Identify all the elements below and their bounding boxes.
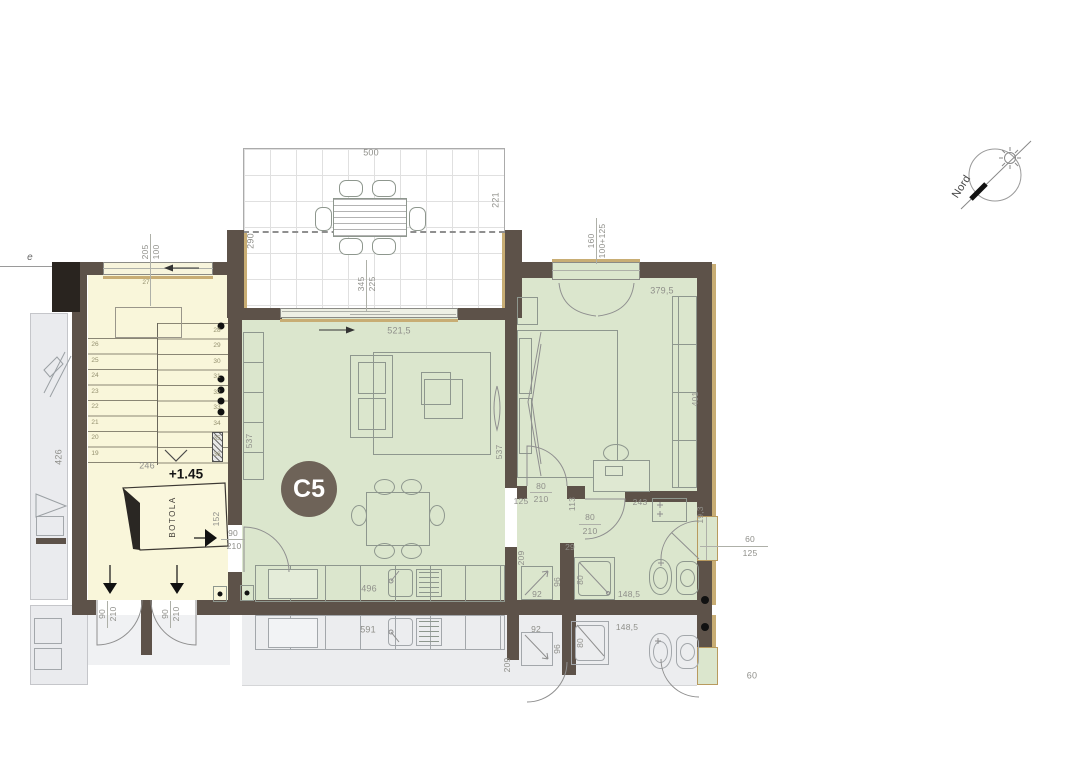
dim-bath-length: 148,5 — [618, 590, 640, 599]
dim-living-right: 537 — [495, 445, 504, 460]
dim-terrace-left: 290 — [247, 233, 256, 249]
dim-shower-w: 92 — [532, 590, 542, 599]
dim-neighbor-kitchen: 591 — [360, 626, 376, 635]
faucet-lines — [391, 571, 399, 642]
neighbor-door-arc — [527, 662, 567, 702]
dim-bedroom-window-h: 100+125 — [598, 224, 607, 259]
sun-icon — [999, 147, 1021, 169]
neighbor-window-arc — [661, 659, 699, 697]
dim-exit1-w: 90 — [98, 609, 107, 619]
step-19: 19 — [91, 451, 98, 458]
stray-text-e: e — [27, 253, 33, 263]
dim-living-window: 521,5 — [387, 327, 411, 336]
step-28: 28 — [213, 328, 220, 335]
living-entry-door-arc — [244, 527, 289, 572]
dim-terrace-right: 221 — [492, 192, 501, 208]
curtain-arcs — [559, 283, 634, 316]
dim-exit2-h: 210 — [172, 607, 181, 622]
plan-linework — [0, 0, 1076, 780]
north-arrow — [961, 141, 1031, 209]
left-neighbor-sketches — [36, 352, 71, 517]
step-20: 20 — [91, 435, 98, 442]
step-35: 35 — [213, 436, 220, 443]
landing-door-arc-left — [97, 600, 142, 645]
step-29: 29 — [213, 343, 220, 350]
dim-left-neighbor: 426 — [55, 449, 64, 465]
dim-terrace-inner-top: 345 — [357, 277, 366, 292]
dim-bath-pier: 19,3 — [696, 506, 705, 523]
dim-neighbor-shower-door: 80 — [576, 638, 585, 648]
step-25: 25 — [91, 358, 98, 365]
step-27: 27 — [142, 280, 149, 287]
step-23: 23 — [91, 389, 98, 396]
bidet-tap-marks — [655, 560, 664, 644]
dim-bedroom-door-offset: 125 — [514, 497, 529, 506]
step-33: 33 — [213, 405, 220, 412]
step-24: 24 — [91, 373, 98, 380]
bathroom-window-arc — [661, 521, 699, 559]
dim-entry-side: 152 — [212, 512, 221, 527]
bath-sink-taps — [657, 502, 663, 517]
dim-bath-door-h: 210 — [583, 527, 598, 536]
dim-neighbor-shower-d: 96 — [553, 644, 562, 654]
dim-neighbor-hall: 209 — [503, 658, 512, 673]
window-opening-arrows — [164, 265, 355, 334]
dim-bath-hall: 209 — [517, 551, 526, 566]
dim-entry-door-h: 210 — [227, 542, 242, 551]
dim-terrace-width: 500 — [363, 149, 379, 158]
bedroom-door-arc — [527, 446, 567, 486]
trapdoor-label: BOTOLA — [169, 496, 177, 537]
floor-plan-canvas: 500 221 290 345 225 205 100 27 26 25 24 … — [0, 0, 1076, 780]
step-32: 32 — [213, 390, 220, 397]
dim-bedroom-width: 379,5 — [650, 287, 674, 296]
unit-badge: C5 — [281, 461, 337, 517]
dim-shower-door: 80 — [576, 575, 585, 585]
dim-stair-window-h: 100 — [152, 245, 161, 260]
dim-living-left: 537 — [245, 434, 254, 449]
dim-line-right-window — [700, 546, 768, 547]
dim-bedroom-jamb: 113 — [568, 497, 577, 511]
dim-bedroom-door-h: 210 — [534, 495, 549, 504]
dim-right-window-h: 125 — [743, 549, 758, 558]
bed-blanket-fold — [528, 332, 541, 476]
dim-neighbor-window: 60 — [747, 672, 757, 681]
step-36: 36 — [213, 452, 220, 459]
dim-shower-d: 96 — [553, 577, 562, 587]
radiator — [494, 386, 500, 430]
neighbor-tray-arrow — [525, 635, 548, 659]
dim-stair-window-w: 205 — [141, 245, 150, 260]
step-21: 21 — [91, 420, 98, 427]
dim-entry-door-w: 90 — [228, 529, 238, 538]
dim-neighbor-shower-w: 92 — [531, 625, 541, 634]
dim-right-window-w: 60 — [745, 535, 755, 544]
dim-bedroom-window-w: 160 — [587, 234, 596, 249]
step-22: 22 — [91, 404, 98, 411]
dim-bedroom-door-w: 80 — [536, 482, 546, 491]
step-26: 26 — [91, 342, 98, 349]
dim-terrace-inner-bottom: 225 — [368, 277, 377, 292]
stairs-up-arrow — [165, 450, 187, 461]
step-31: 31 — [213, 374, 220, 381]
step-30: 30 — [213, 359, 220, 366]
dim-neighbor-length: 148,5 — [616, 623, 638, 632]
dim-kitchen: 496 — [361, 585, 377, 594]
step-34: 34 — [213, 421, 220, 428]
dim-bath-stub: 29 — [565, 543, 575, 552]
dim-exit2-w: 90 — [161, 609, 170, 619]
dim-bedroom-depth: 401 — [691, 392, 700, 407]
dim-stair-width: 246 — [139, 462, 155, 471]
unit-label: C5 — [293, 475, 325, 504]
dim-bath-width: 243 — [633, 498, 648, 507]
dim-exit1-h: 210 — [109, 607, 118, 622]
level-label: +1.45 — [169, 467, 203, 481]
dim-bath-door-w: 80 — [585, 513, 595, 522]
